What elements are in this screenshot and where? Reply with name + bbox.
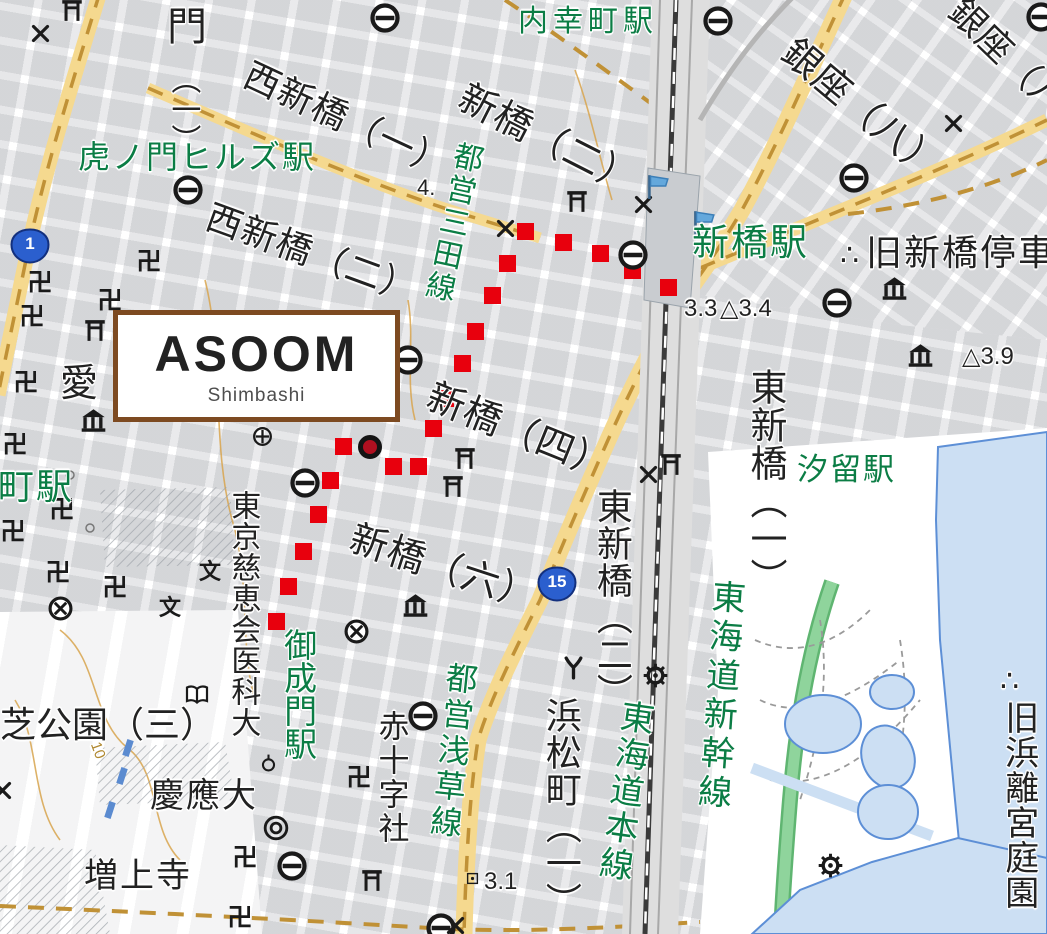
asoom-title: ASOOM (155, 325, 359, 383)
marker-layer: 115 (0, 0, 1047, 934)
route-shield-1: 1 (10, 228, 50, 264)
destination-marker (358, 435, 382, 459)
asoom-overlay-card[interactable]: ASOOM Shimbashi (113, 310, 400, 422)
asoom-subtitle: Shimbashi (208, 385, 306, 407)
route-shield-15: 15 (537, 566, 577, 602)
map-canvas[interactable]: 卍卍卍卍卍卍卍卍卍卍卍卍卍文文 内幸町駅虎ノ門ヒルズ駅新橋駅汐留駅御成門駅都営三… (0, 0, 1047, 934)
